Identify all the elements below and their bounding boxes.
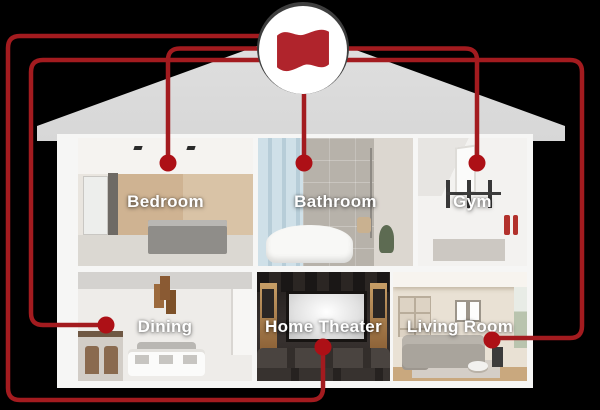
room-label-home-theater: Home Theater [257, 317, 390, 337]
bathroom-stool [357, 217, 371, 232]
dining-stool [85, 346, 99, 374]
track-light-icon [186, 146, 195, 150]
room-tile-living-room[interactable]: Living Room [393, 272, 527, 381]
bathroom-plant [379, 225, 395, 253]
track-light-icon [133, 146, 142, 150]
room-label-living-room: Living Room [393, 317, 527, 337]
dining-pendant-light [160, 276, 170, 300]
dining-stool [104, 346, 118, 374]
flag-icon [274, 25, 332, 75]
smart-home-diagram: Bedroom Bathroom Gym [0, 0, 600, 410]
hub-flag-button[interactable] [259, 6, 347, 94]
bathroom-bathtub [266, 225, 353, 263]
bedroom-bed [148, 220, 227, 255]
gym-dumbbell [513, 215, 518, 235]
bedroom-ceiling [78, 138, 253, 174]
gym-mat [433, 239, 505, 261]
theater-seats-back-row [257, 348, 390, 370]
room-tile-bedroom[interactable]: Bedroom [78, 138, 253, 266]
room-label-bedroom: Bedroom [78, 192, 253, 212]
room-tile-bathroom[interactable]: Bathroom [258, 138, 413, 266]
gym-dumbbell [504, 215, 509, 235]
speaker-icon [262, 289, 274, 317]
room-tile-gym[interactable]: Gym [418, 138, 527, 266]
room-label-dining: Dining [78, 317, 252, 337]
living-tv [492, 347, 503, 367]
room-label-gym: Gym [418, 192, 527, 212]
room-tile-dining[interactable]: Dining [78, 272, 252, 381]
theater-seats-front-row [257, 368, 390, 381]
dining-placemats [135, 355, 198, 364]
speaker-icon [373, 289, 385, 317]
room-label-bathroom: Bathroom [258, 192, 413, 212]
living-ceiling [393, 272, 527, 287]
room-tile-home-theater[interactable]: Home Theater [257, 272, 390, 381]
